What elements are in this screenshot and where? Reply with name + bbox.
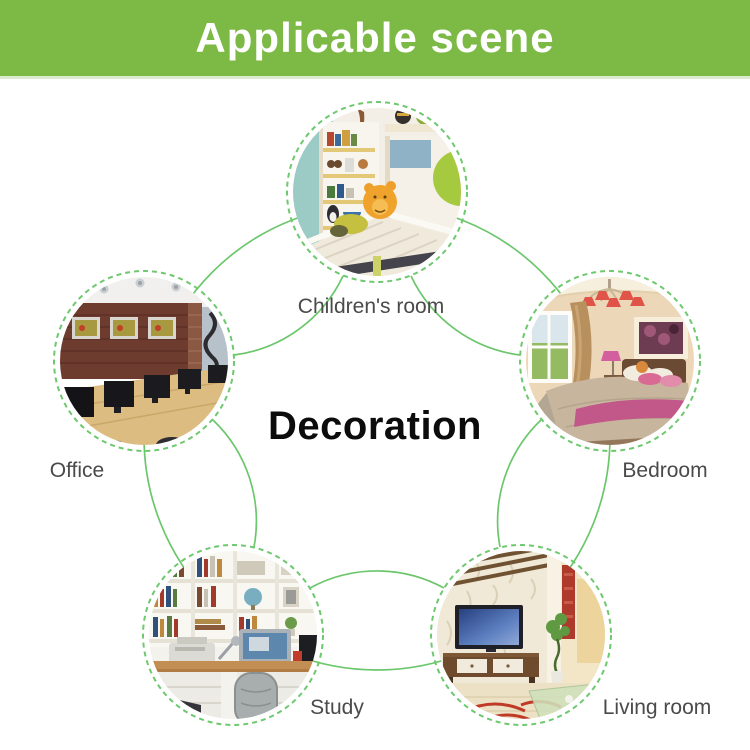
scene-node-office bbox=[52, 269, 236, 453]
inner-arc-living-study bbox=[310, 571, 444, 588]
label-living-room: Living room bbox=[577, 696, 737, 720]
children-room-photo bbox=[285, 100, 469, 284]
label-office: Office bbox=[17, 459, 137, 483]
scene-node-children-room bbox=[285, 100, 469, 284]
label-bedroom: Bedroom bbox=[605, 459, 725, 483]
scene-node-bedroom bbox=[518, 269, 702, 453]
label-study: Study bbox=[277, 696, 397, 720]
page: Applicable scene Decoration bbox=[0, 0, 750, 750]
label-children-room: Children's room bbox=[251, 295, 491, 319]
office-photo bbox=[52, 269, 236, 453]
bedroom-photo bbox=[518, 269, 702, 453]
